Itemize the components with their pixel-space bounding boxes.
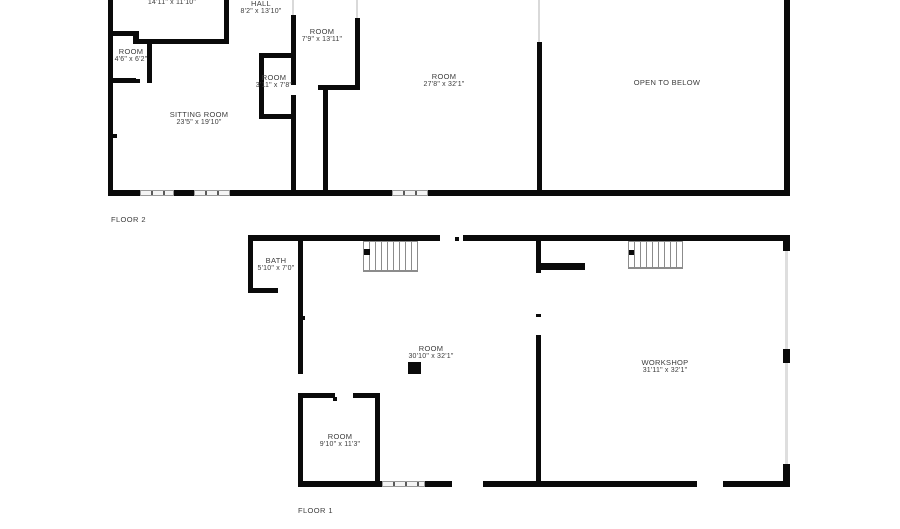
door-tick	[536, 314, 541, 317]
wall-segment	[298, 481, 382, 487]
wall-segment	[483, 481, 697, 487]
room-dimensions: 31'11" x 32'1"	[642, 367, 689, 375]
staircase	[363, 241, 418, 272]
floor1-plan: BATH 5'10" x 7'0" ROOM 30'10" x 32'1" WO…	[0, 0, 900, 529]
room-name: BATH	[258, 257, 295, 265]
room-name: ROOM	[408, 345, 453, 353]
window	[382, 481, 425, 487]
wall-segment	[425, 481, 452, 487]
wall-segment	[375, 393, 380, 486]
room-dimensions: 30'10" x 32'1"	[408, 353, 453, 361]
window	[785, 363, 788, 464]
room-label: ROOM 30'10" x 32'1"	[408, 345, 453, 361]
door-tick	[455, 237, 459, 241]
wall-segment	[536, 263, 585, 270]
wall-segment	[248, 235, 253, 293]
stair-post	[629, 250, 634, 255]
room-label: WORKSHOP 31'11" x 32'1"	[642, 359, 689, 375]
staircase	[628, 241, 683, 269]
wall-segment	[463, 235, 790, 241]
wall-segment	[783, 464, 790, 487]
wall-segment	[298, 393, 335, 398]
wall-segment	[723, 481, 790, 487]
window	[785, 251, 788, 349]
room-label: BATH 5'10" x 7'0"	[258, 257, 295, 273]
room-name: WORKSHOP	[642, 359, 689, 367]
room-dimensions: 9'10" x 11'3"	[320, 441, 360, 449]
wall-segment	[783, 235, 790, 251]
door-tick	[333, 397, 337, 401]
stove-symbol	[408, 362, 421, 374]
stair-post	[364, 249, 370, 255]
floorplan-canvas: 14'11" x 11'10" HALL 8'2" x 13'10" ROOM …	[0, 0, 900, 529]
floor-label: FLOOR 1	[298, 506, 333, 515]
wall-segment	[783, 349, 790, 363]
room-label: ROOM 9'10" x 11'3"	[320, 433, 360, 449]
door-tick	[684, 482, 688, 486]
room-name: ROOM	[320, 433, 360, 441]
wall-segment	[536, 335, 541, 486]
wall-segment	[298, 393, 303, 486]
room-dimensions: 5'10" x 7'0"	[258, 265, 295, 273]
wall-segment	[298, 235, 303, 374]
door-tick	[302, 316, 305, 320]
wall-segment	[248, 288, 278, 293]
